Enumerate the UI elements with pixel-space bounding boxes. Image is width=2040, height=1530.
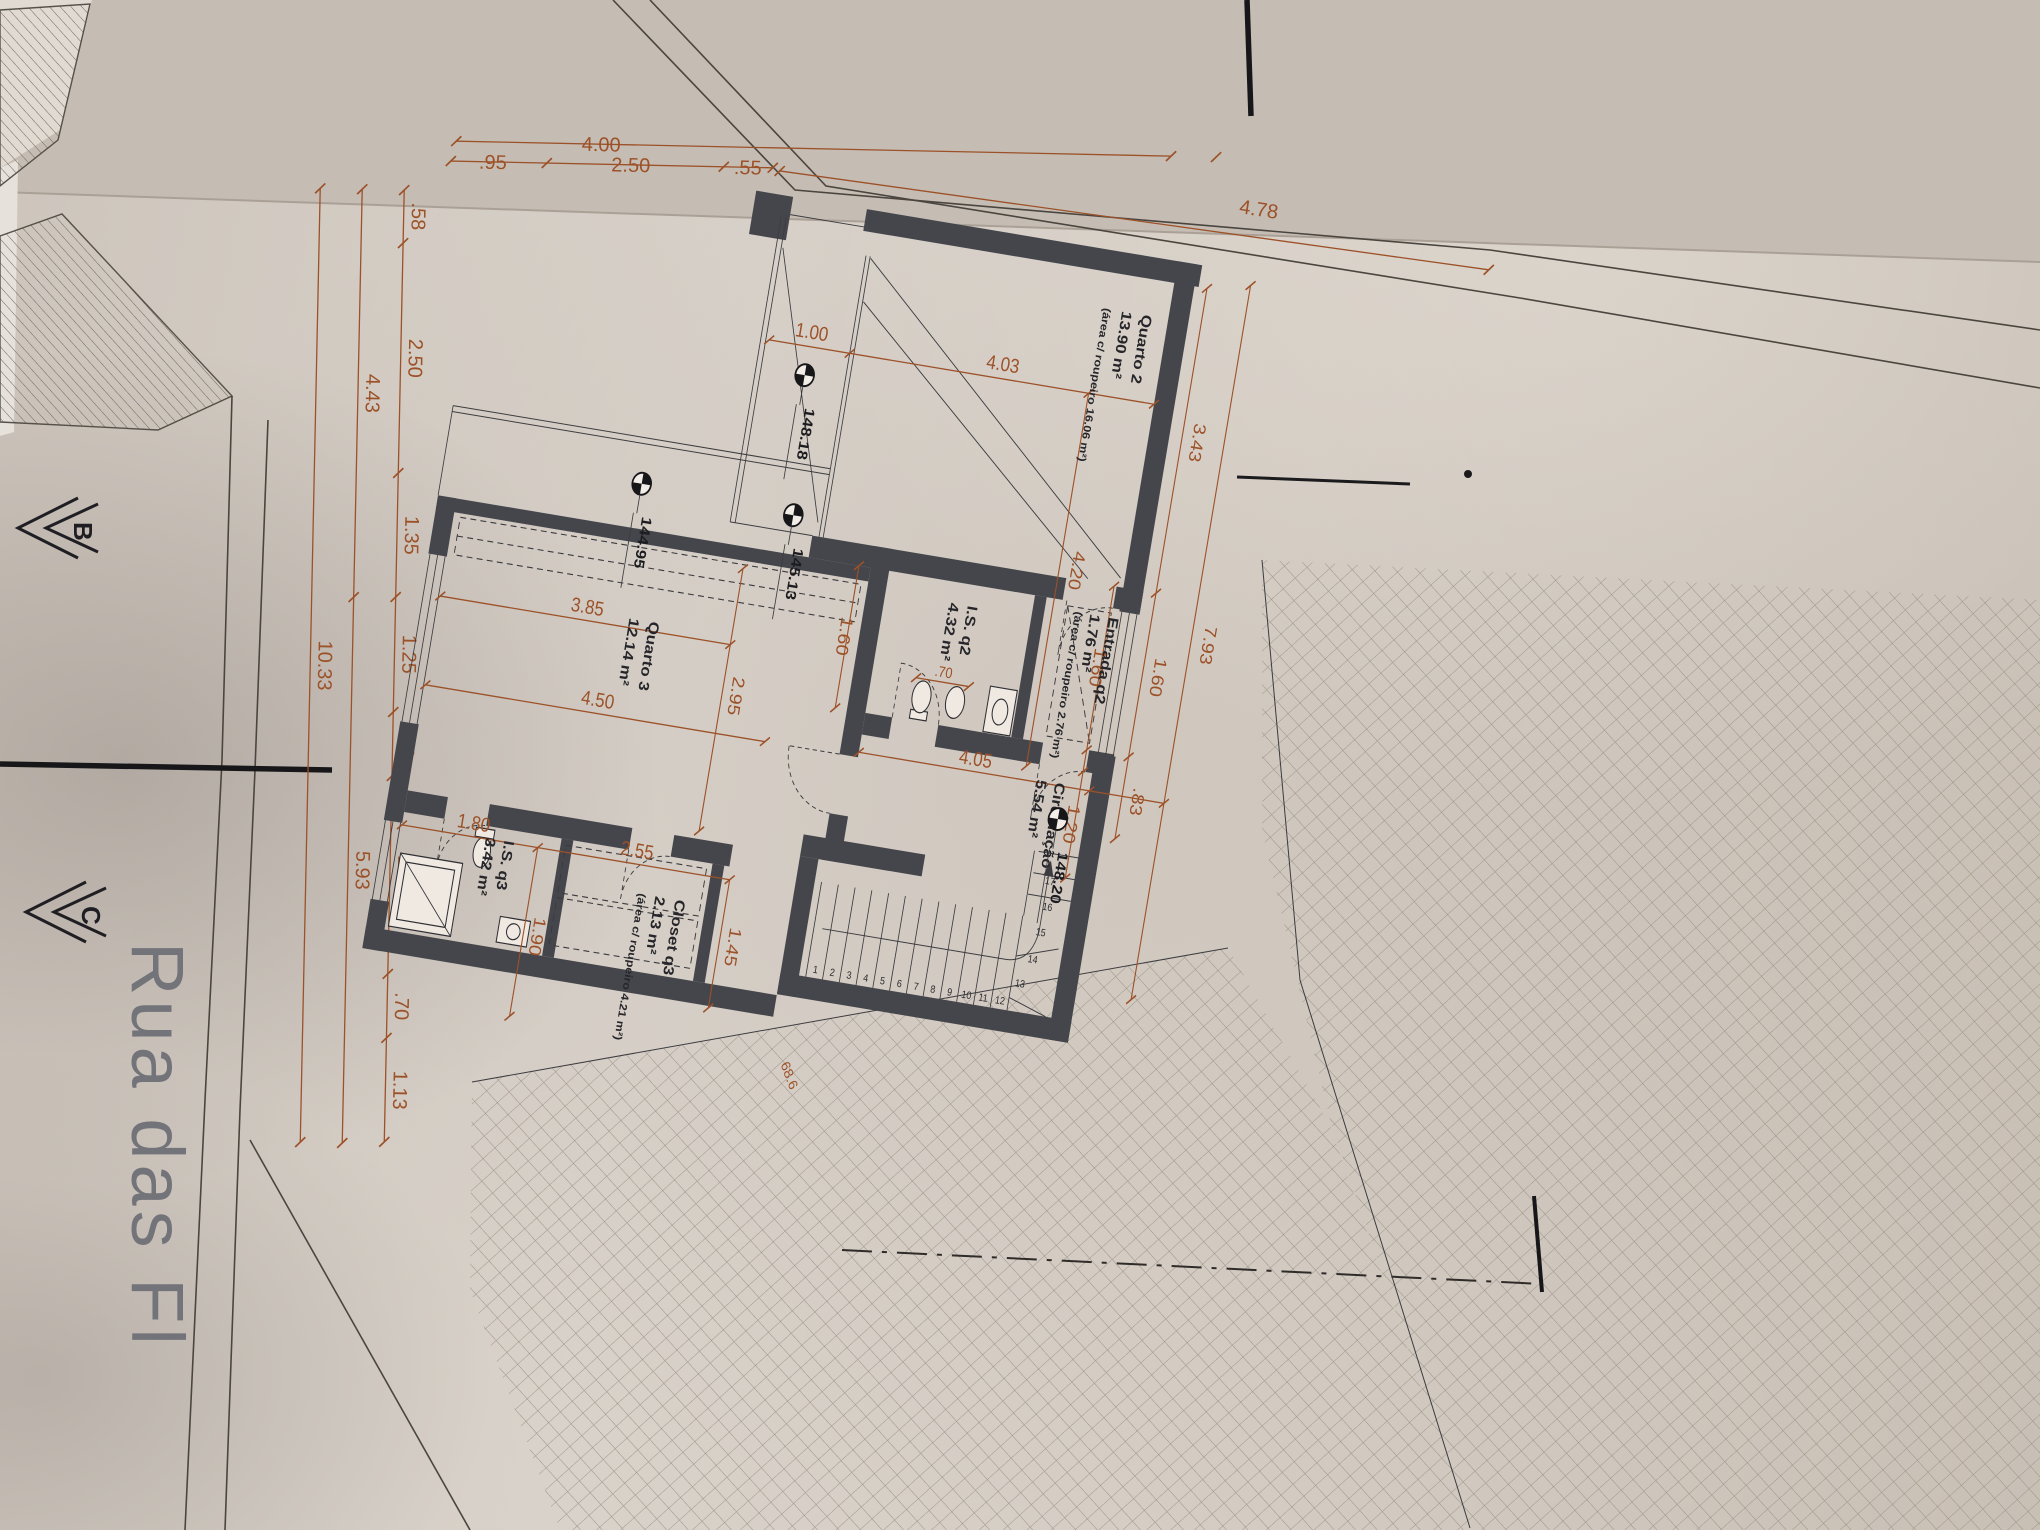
- section-cut-line: [0, 764, 332, 770]
- dim-1-60-win: 1.60: [1146, 657, 1171, 699]
- step-12: 12: [994, 995, 1006, 1008]
- toilet-q2: [910, 680, 934, 715]
- level-marker-148-18: [794, 363, 816, 388]
- entrada-note: (área c/ roupeiro 2.76 m²): [1048, 611, 1084, 760]
- dim-4-00: 4.00: [581, 134, 620, 157]
- dim-83: .83: [1126, 787, 1150, 818]
- dim-70b: .70: [390, 992, 413, 1020]
- dim-4-03: 4.03: [985, 350, 1021, 378]
- step-13: 13: [1014, 978, 1026, 991]
- dim-4-20: 4.20: [1064, 550, 1089, 592]
- step-14: 14: [1027, 953, 1039, 966]
- dim-70-wc: .70: [934, 662, 955, 682]
- step-3: 3: [845, 970, 852, 983]
- street-edge-2: [225, 420, 268, 1530]
- dim-4-05: 4.05: [958, 745, 994, 773]
- dim-135: 1.35: [400, 516, 423, 555]
- photographed-floor-plan: 4.00 .95 2.50 .55 4.78 .58 2.50 1.35 1.2…: [0, 0, 2040, 1530]
- step-11: 11: [978, 992, 989, 1005]
- step-8: 8: [929, 984, 936, 997]
- level-marker-144-95: [631, 471, 653, 496]
- dim-1-00: 1.00: [794, 318, 830, 346]
- quarto2-note: (área c/ roupeiro 16.06 m²): [1075, 307, 1112, 463]
- dim-58: .58: [406, 202, 429, 230]
- dim-593: 5.93: [351, 851, 374, 890]
- dim-7-93: 7.93: [1196, 625, 1221, 667]
- step-2: 2: [829, 967, 836, 980]
- top-paper-band: [0, 0, 2040, 262]
- step-15: 15: [1035, 926, 1047, 939]
- section-label-b: B: [68, 522, 98, 541]
- dim-1033: 10.33: [313, 640, 336, 691]
- right-boundary-segment: [1237, 477, 1410, 484]
- dim-55: .55: [734, 157, 762, 180]
- site-layer: [0, 0, 2040, 1530]
- walls: [362, 147, 1202, 1066]
- dim-3-85: 3.85: [569, 593, 605, 621]
- dim-2-95: 2.95: [724, 676, 749, 718]
- dim-2-50: 2.50: [611, 154, 650, 177]
- dim-1-45: 1.45: [720, 926, 745, 968]
- step-5: 5: [879, 975, 886, 988]
- section-marker-c: C: [26, 882, 106, 942]
- dim-113: 1.13: [388, 1070, 411, 1109]
- dim-4-50: 4.50: [580, 686, 616, 714]
- plan-drawing: 4.00 .95 2.50 .55 4.78 .58 2.50 1.35 1.2…: [0, 0, 2040, 1530]
- dim-250b: 2.50: [403, 339, 426, 378]
- dim-2-55: 2.55: [619, 836, 655, 864]
- terrain-hatch-2: [0, 214, 232, 430]
- closet-note: (área c/ roupeiro 4.21 m²): [611, 892, 647, 1041]
- dim-443: 4.43: [361, 374, 384, 413]
- step-7: 7: [913, 981, 920, 994]
- level-144-95: 144.95: [630, 516, 654, 570]
- boundary-dot: [1464, 470, 1472, 478]
- level-148-18: 148.18: [793, 407, 817, 461]
- section-marker-b: B: [18, 498, 98, 558]
- dim-3-43: 3.43: [1185, 422, 1210, 464]
- street-name: Rua das Fl: [116, 942, 199, 1350]
- dim-95: .95: [479, 152, 507, 175]
- step-1: 1: [812, 964, 819, 977]
- dim-1-80: 1.80: [456, 809, 492, 837]
- level-marker-145-13: [782, 503, 804, 528]
- step-16: 16: [1041, 901, 1053, 914]
- street-fork: [250, 1140, 470, 1530]
- step-4: 4: [862, 973, 869, 986]
- bidet-q2: [943, 685, 967, 720]
- section-label-c: C: [76, 906, 106, 925]
- step-6: 6: [896, 978, 903, 991]
- dim-1-60-west: 1.60: [832, 616, 857, 658]
- dim-125: 1.25: [397, 635, 420, 674]
